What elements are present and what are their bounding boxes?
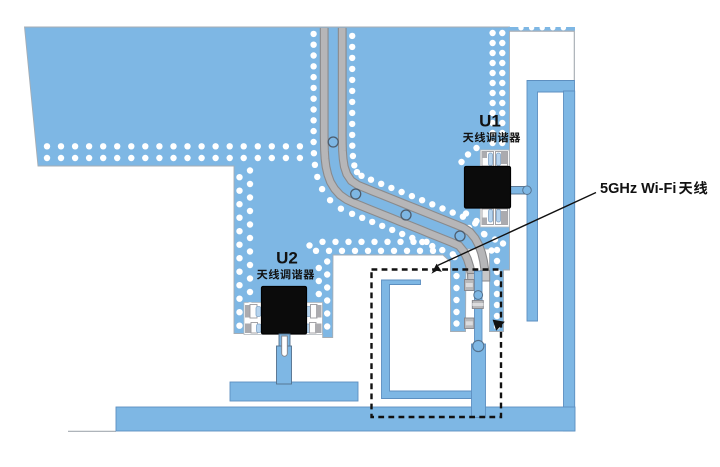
svg-text:U2: U2: [276, 249, 298, 268]
svg-text:5GHz Wi-Fi: 5GHz Wi-Fi: [600, 181, 676, 197]
svg-text:U1: U1: [479, 112, 501, 131]
